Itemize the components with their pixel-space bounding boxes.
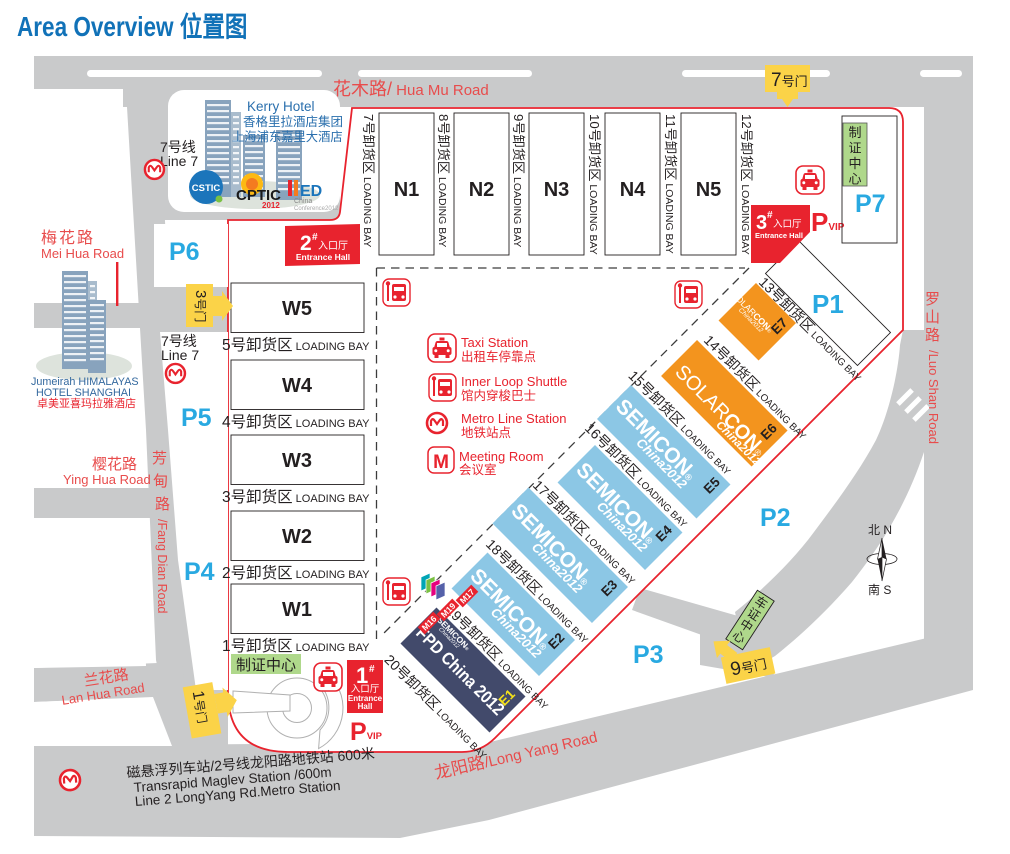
svg-text:P5: P5	[181, 404, 212, 432]
svg-text:会议室: 会议室	[459, 462, 497, 477]
svg-text:馆内穿梭巴士: 馆内穿梭巴士	[461, 388, 536, 403]
svg-text:2012: 2012	[262, 201, 280, 210]
svg-text:P6: P6	[169, 238, 200, 266]
svg-text:Entrance Hall: Entrance Hall	[296, 252, 350, 262]
svg-text:N1: N1	[394, 179, 420, 201]
svg-text:N4: N4	[620, 179, 646, 201]
svg-text:花木路/ Hua Mu Road: 花木路/ Hua Mu Road	[333, 79, 489, 99]
svg-text:Taxi Station: Taxi Station	[461, 335, 528, 350]
svg-text:Line 7: Line 7	[160, 153, 198, 169]
svg-text:Conference2012: Conference2012	[294, 206, 339, 212]
svg-text:北 N: 北 N	[868, 523, 892, 537]
svg-text:China: China	[294, 198, 312, 205]
svg-text:梅花路: 梅花路	[41, 229, 95, 247]
svg-text:/Fang Dian Road: /Fang Dian Road	[155, 519, 169, 614]
svg-text:制证中心: 制证中心	[236, 657, 296, 674]
svg-text:Entrance Hall: Entrance Hall	[755, 231, 803, 240]
svg-text:卓美亚喜玛拉雅酒店: 卓美亚喜玛拉雅酒店	[37, 396, 136, 410]
svg-text:P7: P7	[855, 190, 886, 218]
svg-text:Area Overview 位置图: Area Overview 位置图	[17, 11, 247, 43]
svg-text:Meeting Room: Meeting Room	[459, 449, 544, 464]
svg-text:7号门: 7号门	[771, 70, 808, 91]
svg-text:Hall: Hall	[358, 702, 373, 711]
svg-text:3号门: 3号门	[192, 290, 209, 322]
svg-text:Metro Line Station: Metro Line Station	[461, 411, 567, 426]
svg-text:P1: P1	[812, 289, 844, 319]
svg-text:N3: N3	[544, 179, 570, 201]
svg-text:P3: P3	[633, 641, 664, 669]
svg-text:Ying Hua Road: Ying Hua Road	[63, 472, 151, 487]
svg-text:南 S: 南 S	[868, 582, 891, 597]
svg-text:N5: N5	[696, 179, 722, 201]
svg-text:地铁站点: 地铁站点	[461, 426, 511, 440]
svg-text:/Luo Shan Road: /Luo Shan Road	[926, 350, 941, 444]
svg-text:入口厅: 入口厅	[773, 219, 802, 230]
svg-text:W4: W4	[282, 375, 313, 397]
svg-text:出租车停靠点: 出租车停靠点	[461, 349, 536, 364]
svg-text:上海浦东嘉里大酒店: 上海浦东嘉里大酒店	[232, 129, 343, 144]
svg-text:CSTIC: CSTIC	[192, 183, 221, 194]
svg-text:Kerry Hotel: Kerry Hotel	[247, 99, 315, 114]
svg-text:Line 7: Line 7	[161, 347, 199, 363]
svg-text:香格里拉酒店集团: 香格里拉酒店集团	[243, 114, 343, 129]
svg-text:N2: N2	[469, 179, 495, 201]
svg-text:入口厅: 入口厅	[318, 241, 348, 252]
svg-text:P4: P4	[184, 558, 215, 586]
svg-text:P2: P2	[760, 504, 791, 532]
svg-text:#: #	[369, 664, 375, 675]
svg-text:W5: W5	[282, 298, 312, 320]
svg-text:樱花路: 樱花路	[92, 456, 137, 473]
svg-text:W1: W1	[282, 599, 312, 621]
svg-text:Mei Hua Road: Mei Hua Road	[41, 246, 124, 261]
svg-text:罗山路: 罗山路	[925, 291, 940, 344]
svg-text:M: M	[433, 452, 449, 473]
svg-text:制证中心: 制证中心	[848, 125, 861, 187]
svg-text:Inner Loop Shuttle: Inner Loop Shuttle	[461, 374, 567, 389]
svg-text:W3: W3	[282, 450, 312, 472]
svg-text:W2: W2	[282, 526, 312, 548]
